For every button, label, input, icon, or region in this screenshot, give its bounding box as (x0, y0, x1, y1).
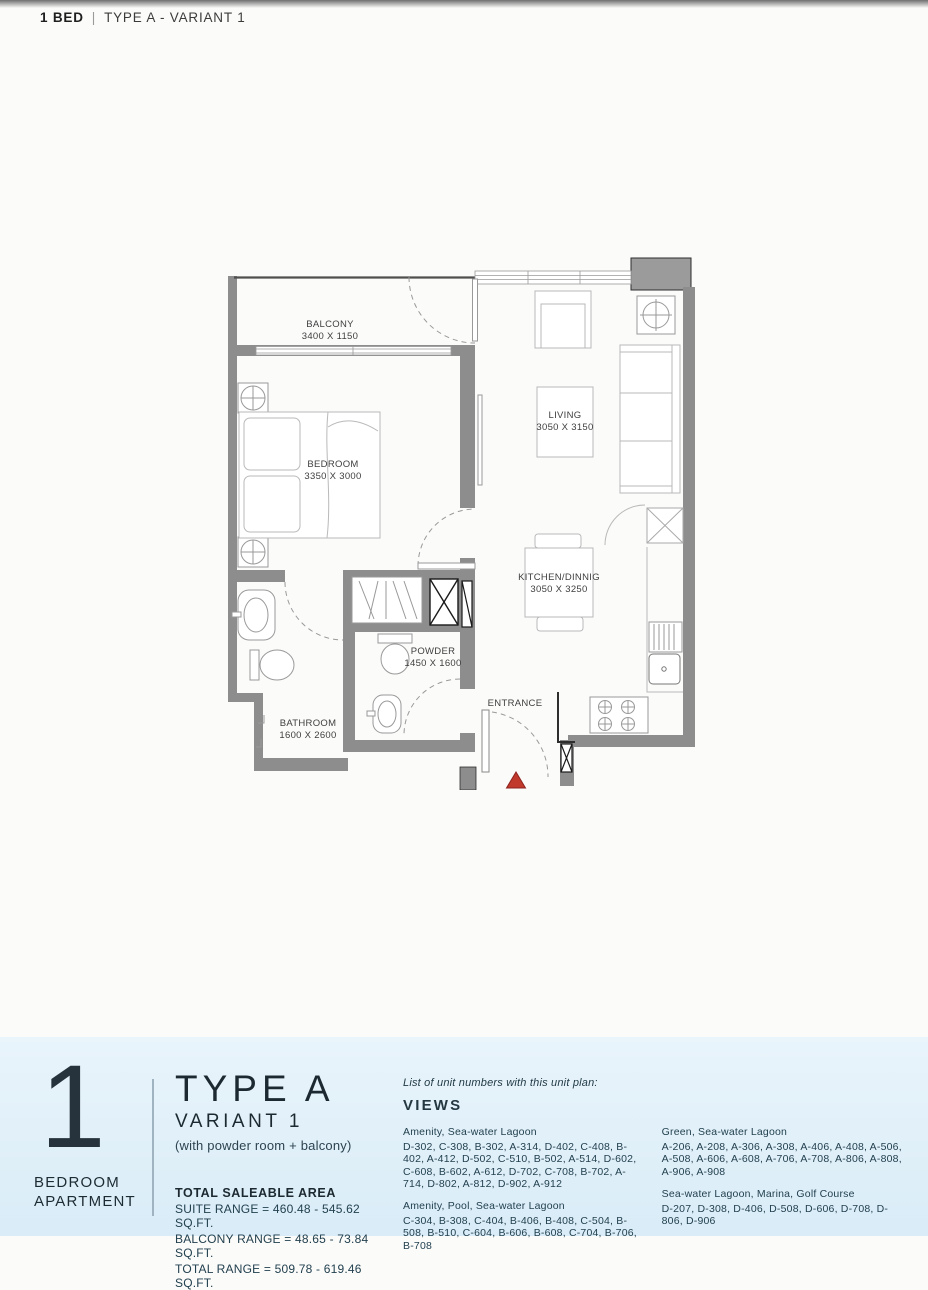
floor-plan: BALCONY 3400 X 1150 BEDROOM 3350 X 3000 … (228, 255, 698, 790)
powder-door-arc (404, 679, 460, 735)
page-title-rest: TYPE A - VARIANT 1 (104, 10, 245, 25)
balcony-range: BALCONY RANGE = 48.65 - 73.84 SQ.FT. (175, 1233, 390, 1260)
appliance-box (647, 508, 683, 543)
view-group-units: D-207, D-308, D-406, D-508, D-606, D-708… (662, 1203, 908, 1228)
view-group: Green, Sea-water Lagoon A-206, A-208, A-… (662, 1126, 908, 1178)
living-dims: 3050 X 3150 (536, 422, 593, 433)
column-marker-bedroom-top (238, 383, 268, 413)
view-group: Amenity, Sea-water Lagoon D-302, C-308, … (403, 1126, 638, 1190)
entrance-door-arc (492, 712, 548, 777)
furniture (232, 291, 683, 772)
page-title-bold: 1 BED (40, 10, 84, 25)
caption-line-2: APARTMENT (34, 1192, 144, 1211)
balcony-label: BALCONY (306, 319, 354, 330)
kitchen-label: KITCHEN/DINNIG (518, 572, 600, 583)
total-range: TOTAL RANGE = 509.78 - 619.46 SQ.FT. (175, 1263, 390, 1290)
views-block: List of unit numbers with this unit plan… (403, 1077, 908, 1262)
type-variant-note: (with powder room + balcony) (175, 1138, 390, 1153)
kitchen-sink (649, 622, 682, 684)
footer-band: 1 BEDROOM APARTMENT TYPE A VARIANT 1 (wi… (0, 1037, 928, 1236)
sofa (620, 345, 680, 493)
view-group: Sea-water Lagoon, Marina, Golf Course D-… (662, 1188, 908, 1228)
bathroom-toilet (250, 650, 294, 680)
kitchen-door-arc (605, 505, 645, 545)
bedroom-door-arc (418, 509, 475, 566)
bathroom-label: BATHROOM (280, 718, 337, 729)
powder-sink (367, 695, 401, 733)
view-group-title: Sea-water Lagoon, Marina, Golf Course (662, 1188, 908, 1200)
column-marker-bedroom-bottom (238, 537, 268, 567)
page-title: 1 BED | TYPE A - VARIANT 1 (40, 10, 246, 25)
view-group-units: C-304, B-308, C-404, B-406, B-408, C-504… (403, 1215, 638, 1252)
living-window (475, 271, 631, 284)
stove (590, 697, 648, 733)
wardrobe (352, 577, 422, 623)
type-variant: VARIANT 1 (175, 1111, 390, 1133)
unit-count-caption: BEDROOM APARTMENT (34, 1173, 144, 1211)
balcony-door-leaf (473, 279, 478, 341)
view-group-title: Amenity, Sea-water Lagoon (403, 1126, 638, 1138)
type-title: TYPE A (175, 1070, 390, 1108)
view-group-units: D-302, C-308, B-302, A-314, D-402, C-408… (403, 1141, 638, 1190)
unit-count-block: 1 BEDROOM APARTMENT (34, 1055, 144, 1211)
shaft-box (430, 579, 458, 625)
tv-panel (478, 395, 482, 485)
page-title-separator: | (92, 10, 96, 25)
type-block: TYPE A VARIANT 1 (with powder room + bal… (175, 1070, 390, 1290)
living-label: LIVING (549, 410, 582, 421)
entrance-arrow (507, 772, 526, 788)
door-panel-box (462, 581, 472, 627)
entrance-label: ENTRANCE (488, 698, 543, 709)
views-column-left: Amenity, Sea-water Lagoon D-302, C-308, … (403, 1126, 638, 1262)
suite-range: SUITE RANGE = 460.48 - 545.62 SQ.FT. (175, 1203, 390, 1230)
unit-count-numeral: 1 (34, 1055, 144, 1159)
caption-line-1: BEDROOM (34, 1173, 144, 1192)
balcony-door-arc (409, 277, 475, 343)
views-columns: Amenity, Sea-water Lagoon D-302, C-308, … (403, 1126, 908, 1262)
bedroom-door-leaf (418, 563, 475, 569)
views-intro: List of unit numbers with this unit plan… (403, 1077, 908, 1089)
parapet-block (631, 258, 691, 290)
top-shadow-strip (0, 0, 928, 8)
view-group-units: A-206, A-208, A-306, A-308, A-406, A-408… (662, 1141, 908, 1178)
powder-dims: 1450 X 1600 (404, 658, 461, 669)
kitchen-corner-wall (558, 692, 575, 742)
saleable-area-heading: TOTAL SALEABLE AREA (175, 1186, 390, 1200)
entrance-frame-box (561, 744, 572, 772)
bathroom-vanity (232, 590, 275, 640)
kitchen-dims: 3050 X 3250 (530, 584, 587, 595)
bathroom-dims: 1600 X 2600 (279, 730, 336, 741)
bedroom-label: BEDROOM (307, 459, 358, 470)
powder-label: POWDER (411, 646, 456, 657)
bedroom-window (256, 347, 451, 356)
view-group-title: Green, Sea-water Lagoon (662, 1126, 908, 1138)
views-column-right: Green, Sea-water Lagoon A-206, A-208, A-… (662, 1126, 908, 1262)
balcony-dims: 3400 X 1150 (302, 331, 358, 342)
armchair (535, 291, 591, 348)
view-group: Amenity, Pool, Sea-water Lagoon C-304, B… (403, 1200, 638, 1252)
entrance-door-leaf (482, 710, 489, 772)
bedroom-dims: 3350 X 3000 (304, 471, 361, 482)
bathroom-door-arc (285, 582, 343, 640)
footer-divider (152, 1079, 154, 1216)
view-group-title: Amenity, Pool, Sea-water Lagoon (403, 1200, 638, 1212)
column-marker-living (637, 296, 675, 334)
views-heading: VIEWS (403, 1097, 908, 1114)
